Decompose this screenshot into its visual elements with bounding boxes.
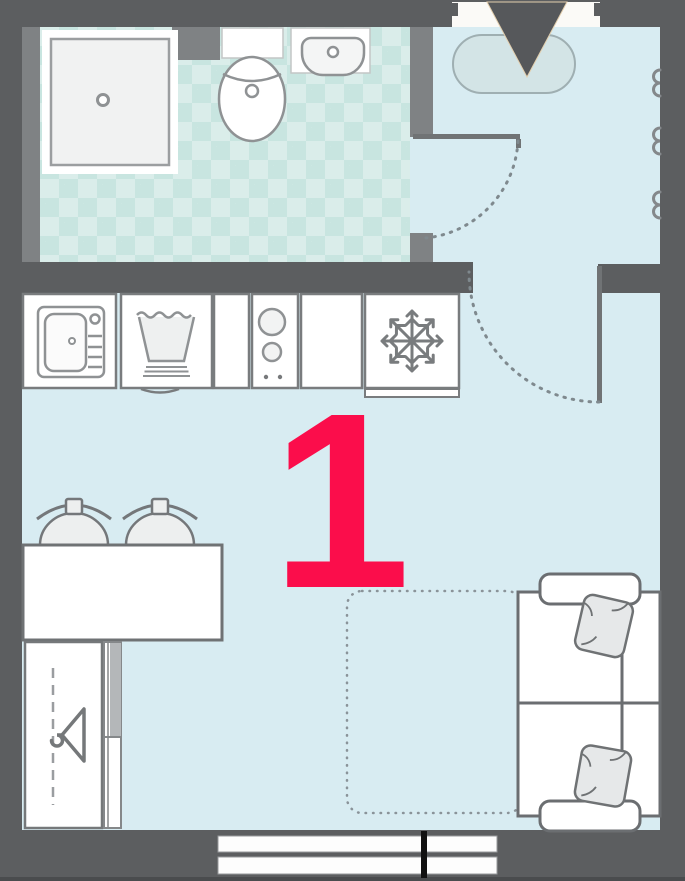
floorplan: 1 (0, 0, 685, 881)
sofa (518, 574, 660, 831)
unit-number-label: 1 (268, 376, 408, 626)
hall-door (469, 266, 602, 403)
chair-icon (37, 499, 111, 545)
shower-icon (42, 30, 178, 174)
hall-door-swing-arc (469, 272, 599, 402)
washbasin-icon (291, 28, 370, 75)
wardrobe-sliding-rail (104, 642, 121, 828)
pillow-icon (573, 593, 634, 659)
wall-outlet-icon (654, 192, 660, 218)
chair-icon (123, 499, 197, 545)
bathroom-door-leaf (413, 134, 520, 139)
pillow-icon (574, 744, 633, 808)
wall-outlet-icon (654, 70, 660, 96)
wall-outlet-icon (654, 128, 660, 154)
toilet-icon (219, 28, 285, 141)
counter-segment (214, 294, 249, 388)
window (218, 831, 497, 878)
wall-outlet-icons (654, 70, 660, 218)
bathroom-door (413, 134, 521, 238)
wardrobe (25, 642, 121, 828)
sofa-armrest (540, 801, 640, 831)
bathroom-door-swing-arc (426, 141, 518, 238)
window-mullion (421, 831, 427, 878)
kitchen-sink-icon (38, 307, 104, 377)
dining-table (23, 545, 222, 640)
hall-door-leaf (597, 266, 602, 403)
